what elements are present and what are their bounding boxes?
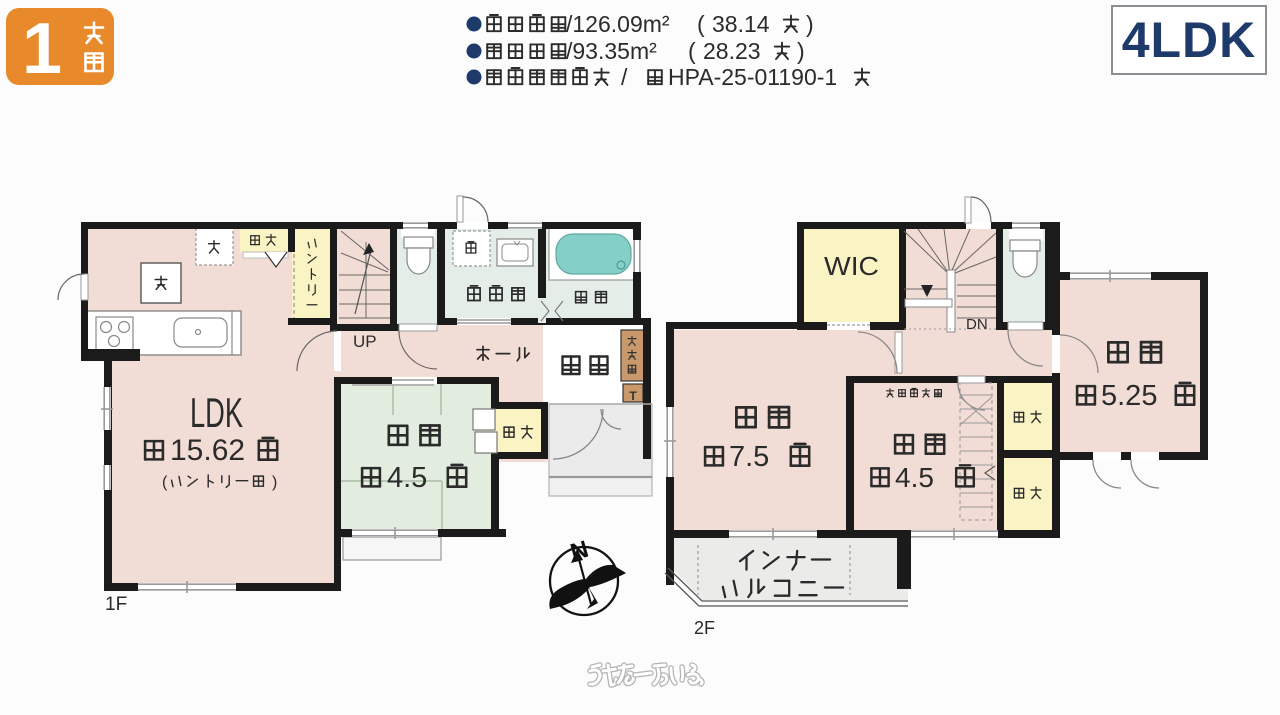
svg-text:38.14: 38.14 <box>712 11 770 37</box>
svg-text:4.5: 4.5 <box>387 462 427 494</box>
svg-text:): ) <box>797 38 805 64</box>
svg-text:T: T <box>629 389 637 403</box>
svg-text:4LDK: 4LDK <box>1122 12 1257 68</box>
svg-text:28.23: 28.23 <box>703 38 761 64</box>
svg-text:(: ( <box>697 11 705 37</box>
svg-text:/: / <box>621 64 628 90</box>
svg-text:/126.09m²: /126.09m² <box>566 11 670 37</box>
svg-text:1F: 1F <box>105 594 127 615</box>
svg-text:(: ( <box>162 474 168 491</box>
svg-text:1: 1 <box>22 9 62 89</box>
svg-text:/93.35m²: /93.35m² <box>566 38 657 64</box>
svg-text:5.25: 5.25 <box>1101 380 1157 412</box>
svg-text:WIC: WIC <box>824 251 879 281</box>
svg-text:(: ( <box>688 38 696 64</box>
svg-text:2F: 2F <box>694 618 715 638</box>
svg-text:UP: UP <box>353 332 377 351</box>
svg-text:DN: DN <box>966 316 988 333</box>
svg-text:LDK: LDK <box>190 389 243 436</box>
svg-text:4.5: 4.5 <box>895 462 934 493</box>
svg-text:7.5: 7.5 <box>729 441 769 473</box>
svg-text:15.62: 15.62 <box>170 434 245 467</box>
svg-text:HPA-25-01190-1: HPA-25-01190-1 <box>668 64 837 90</box>
svg-text:): ) <box>806 11 814 37</box>
svg-text:): ) <box>272 474 277 491</box>
